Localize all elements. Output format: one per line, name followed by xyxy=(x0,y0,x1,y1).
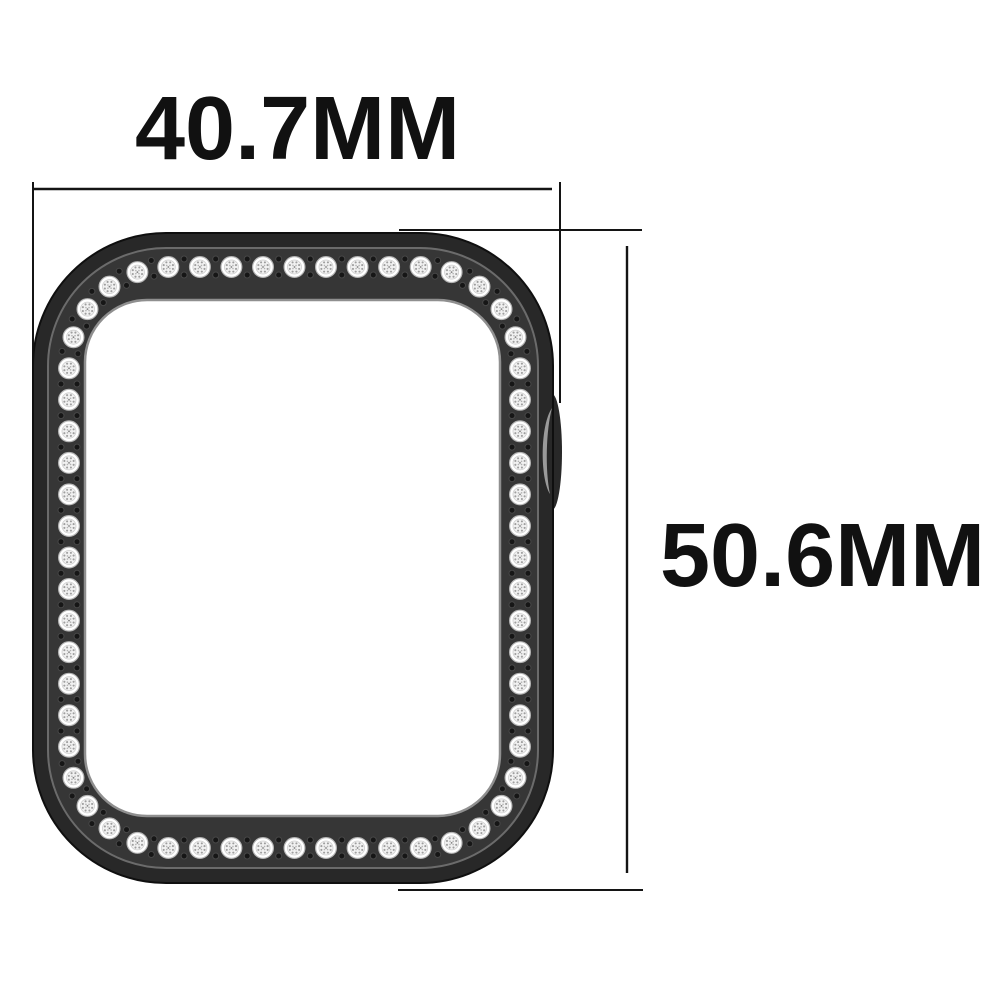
spacer-dot xyxy=(307,853,313,859)
spacer-dot xyxy=(525,381,531,387)
rhinestone xyxy=(59,421,80,442)
spacer-dot xyxy=(74,381,80,387)
rhinestone xyxy=(63,767,84,788)
rhinestone xyxy=(469,276,490,297)
spacer-dot xyxy=(508,351,514,357)
rhinestone xyxy=(469,818,490,839)
rhinestone xyxy=(510,579,531,600)
watch-case-illustration xyxy=(0,0,1000,1000)
rhinestone xyxy=(59,705,80,726)
spacer-dot xyxy=(509,381,515,387)
rhinestone xyxy=(99,276,120,297)
spacer-dot xyxy=(525,665,531,671)
spacer-dot xyxy=(100,809,106,815)
rhinestone xyxy=(59,516,80,537)
spacer-dot xyxy=(59,761,65,767)
spacer-dot xyxy=(339,837,345,843)
spacer-dot xyxy=(339,853,345,859)
spacer-dot xyxy=(74,444,80,450)
spacer-dot xyxy=(181,256,187,262)
rhinestone xyxy=(253,257,274,278)
spacer-dot xyxy=(402,272,408,278)
rhinestone xyxy=(505,767,526,788)
spacer-dot xyxy=(402,853,408,859)
spacer-dot xyxy=(402,837,408,843)
spacer-dot xyxy=(525,413,531,419)
rhinestone xyxy=(410,838,431,859)
rhinestone xyxy=(510,736,531,757)
spacer-dot xyxy=(58,507,64,513)
spacer-dot xyxy=(58,539,64,545)
spacer-dot xyxy=(75,758,81,764)
rhinestone xyxy=(510,516,531,537)
spacer-dot xyxy=(213,272,219,278)
spacer-dot xyxy=(151,836,157,842)
spacer-dot xyxy=(74,696,80,702)
spacer-dot xyxy=(89,821,95,827)
rhinestone xyxy=(491,796,512,817)
rhinestone xyxy=(510,358,531,379)
spacer-dot xyxy=(84,786,90,792)
spacer-dot xyxy=(509,633,515,639)
spacer-dot xyxy=(525,476,531,482)
rhinestone xyxy=(510,389,531,410)
spacer-dot xyxy=(58,633,64,639)
spacer-dot xyxy=(276,256,282,262)
spacer-dot xyxy=(525,539,531,545)
rhinestone xyxy=(59,610,80,631)
rhinestone xyxy=(59,484,80,505)
spacer-dot xyxy=(435,258,441,264)
spacer-dot xyxy=(116,268,122,274)
spacer-dot xyxy=(525,570,531,576)
spacer-dot xyxy=(58,602,64,608)
rhinestone xyxy=(221,257,242,278)
spacer-dot xyxy=(499,323,505,329)
spacer-dot xyxy=(525,728,531,734)
rhinestone xyxy=(59,642,80,663)
rhinestone xyxy=(190,257,211,278)
rhinestone xyxy=(410,257,431,278)
rhinestone xyxy=(59,736,80,757)
spacer-dot xyxy=(525,602,531,608)
spacer-dot xyxy=(181,837,187,843)
spacer-dot xyxy=(509,696,515,702)
spacer-dot xyxy=(84,323,90,329)
rhinestone xyxy=(510,453,531,474)
rhinestone xyxy=(510,484,531,505)
rhinestone xyxy=(59,673,80,694)
spacer-dot xyxy=(213,256,219,262)
spacer-dot xyxy=(307,272,313,278)
rhinestone xyxy=(127,833,148,854)
spacer-dot xyxy=(148,258,154,264)
rhinestone xyxy=(284,257,305,278)
rhinestone xyxy=(347,838,368,859)
spacer-dot xyxy=(525,696,531,702)
rhinestone xyxy=(284,838,305,859)
rhinestone xyxy=(59,453,80,474)
spacer-dot xyxy=(244,837,250,843)
rhinestone xyxy=(510,421,531,442)
spacer-dot xyxy=(509,476,515,482)
spacer-dot xyxy=(370,837,376,843)
spacer-dot xyxy=(524,348,530,354)
spacer-dot xyxy=(213,853,219,859)
rhinestone xyxy=(158,257,179,278)
spacer-dot xyxy=(74,602,80,608)
spacer-dot xyxy=(525,633,531,639)
spacer-dot xyxy=(509,413,515,419)
rhinestone xyxy=(441,262,462,283)
spacer-dot xyxy=(276,853,282,859)
spacer-dot xyxy=(509,539,515,545)
spacer-dot xyxy=(370,272,376,278)
spacer-dot xyxy=(514,316,520,322)
spacer-dot xyxy=(494,288,500,294)
spacer-dot xyxy=(494,821,500,827)
spacer-dot xyxy=(181,272,187,278)
rhinestone xyxy=(127,262,148,283)
spacer-dot xyxy=(244,256,250,262)
spacer-dot xyxy=(213,837,219,843)
rhinestone xyxy=(221,838,242,859)
spacer-dot xyxy=(509,602,515,608)
spacer-dot xyxy=(514,793,520,799)
spacer-dot xyxy=(509,665,515,671)
spacer-dot xyxy=(509,444,515,450)
rhinestone xyxy=(316,838,337,859)
rhinestone xyxy=(63,327,84,348)
spacer-dot xyxy=(244,272,250,278)
spacer-dot xyxy=(74,633,80,639)
rhinestone xyxy=(510,547,531,568)
spacer-dot xyxy=(69,316,75,322)
spacer-dot xyxy=(524,761,530,767)
spacer-dot xyxy=(74,507,80,513)
spacer-dot xyxy=(276,837,282,843)
spacer-dot xyxy=(499,786,505,792)
spacer-dot xyxy=(460,827,466,833)
spacer-dot xyxy=(432,836,438,842)
rhinestone xyxy=(441,833,462,854)
spacer-dot xyxy=(124,827,130,833)
spacer-dot xyxy=(151,273,157,279)
spacer-dot xyxy=(58,381,64,387)
spacer-dot xyxy=(75,351,81,357)
rhinestone xyxy=(253,838,274,859)
spacer-dot xyxy=(74,665,80,671)
rhinestone xyxy=(190,838,211,859)
spacer-dot xyxy=(370,853,376,859)
rhinestone xyxy=(158,838,179,859)
spacer-dot xyxy=(58,444,64,450)
inner-window xyxy=(85,300,500,816)
rhinestone xyxy=(59,358,80,379)
spacer-dot xyxy=(508,758,514,764)
spacer-dot xyxy=(74,570,80,576)
spacer-dot xyxy=(74,476,80,482)
spacer-dot xyxy=(525,444,531,450)
spacer-dot xyxy=(58,696,64,702)
spacer-dot xyxy=(59,348,65,354)
rhinestone xyxy=(379,838,400,859)
rhinestone xyxy=(347,257,368,278)
spacer-dot xyxy=(58,728,64,734)
rhinestone xyxy=(59,579,80,600)
spacer-dot xyxy=(339,256,345,262)
spacer-dot xyxy=(74,413,80,419)
spacer-dot xyxy=(370,256,376,262)
spacer-dot xyxy=(402,256,408,262)
rhinestone xyxy=(510,705,531,726)
spacer-dot xyxy=(509,728,515,734)
rhinestone xyxy=(510,673,531,694)
rhinestone xyxy=(59,547,80,568)
spacer-dot xyxy=(148,852,154,858)
spacer-dot xyxy=(89,288,95,294)
rhinestone xyxy=(510,642,531,663)
spacer-dot xyxy=(460,282,466,288)
rhinestone xyxy=(77,796,98,817)
spacer-dot xyxy=(307,256,313,262)
watch-case xyxy=(33,233,562,883)
spacer-dot xyxy=(124,282,130,288)
spacer-dot xyxy=(483,300,489,306)
rhinestone xyxy=(316,257,337,278)
product-dimension-diagram: 40.7MM 50.6MM xyxy=(0,0,1000,1000)
spacer-dot xyxy=(435,852,441,858)
rhinestone xyxy=(59,389,80,410)
spacer-dot xyxy=(116,841,122,847)
spacer-dot xyxy=(69,793,75,799)
spacer-dot xyxy=(181,853,187,859)
spacer-dot xyxy=(58,570,64,576)
rhinestone xyxy=(379,257,400,278)
rhinestone xyxy=(510,610,531,631)
rhinestone xyxy=(99,818,120,839)
spacer-dot xyxy=(58,665,64,671)
spacer-dot xyxy=(509,570,515,576)
spacer-dot xyxy=(483,809,489,815)
spacer-dot xyxy=(244,853,250,859)
spacer-dot xyxy=(100,300,106,306)
spacer-dot xyxy=(467,268,473,274)
spacer-dot xyxy=(276,272,282,278)
spacer-dot xyxy=(432,273,438,279)
rhinestone xyxy=(77,299,98,320)
spacer-dot xyxy=(58,476,64,482)
spacer-dot xyxy=(467,841,473,847)
spacer-dot xyxy=(74,728,80,734)
spacer-dot xyxy=(307,837,313,843)
spacer-dot xyxy=(74,539,80,545)
spacer-dot xyxy=(339,272,345,278)
rhinestone xyxy=(505,327,526,348)
rhinestone xyxy=(491,299,512,320)
spacer-dot xyxy=(509,507,515,513)
spacer-dot xyxy=(58,413,64,419)
spacer-dot xyxy=(525,507,531,513)
